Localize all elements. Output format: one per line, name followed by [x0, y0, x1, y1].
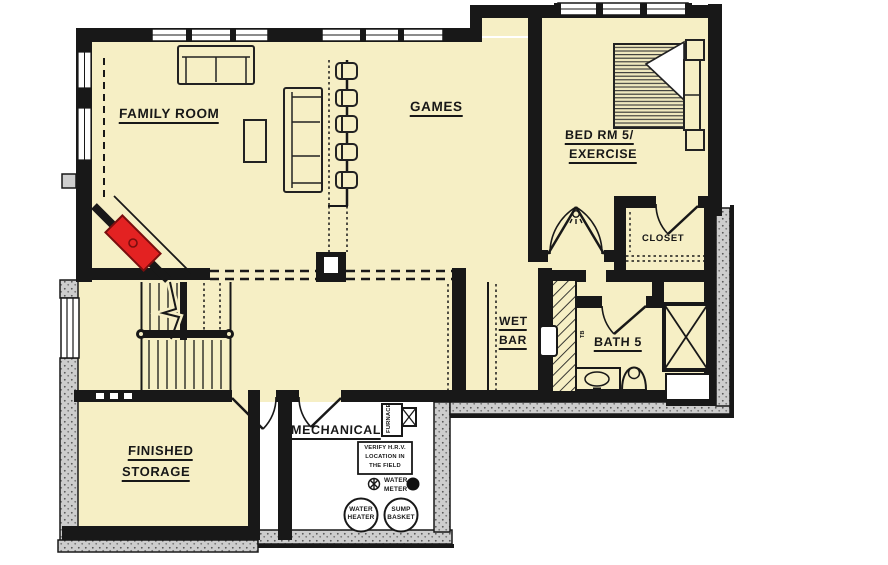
bedroom5-label-line2: EXERCISE [569, 148, 638, 164]
window-well [666, 374, 710, 400]
left-wall-window-2 [78, 108, 91, 160]
hrv-note-line2: LOCATION IN [358, 455, 412, 461]
nightstand [686, 130, 704, 150]
wet-bar-label-line2: BAR [499, 334, 527, 350]
towel-bar-label: TB [581, 330, 587, 338]
games-label: GAMES [410, 100, 463, 117]
bar-stool [336, 172, 357, 188]
bar-stool [336, 63, 357, 79]
sump-basket-label-line2: BASKET [384, 515, 418, 521]
shower [664, 304, 708, 370]
floor-drain-icon [407, 478, 420, 491]
left-wall-window-1 [78, 52, 91, 88]
bath5-label: BATH 5 [594, 336, 642, 352]
sofa [284, 88, 322, 192]
handrail [136, 329, 234, 339]
hall-stub-notch [324, 257, 338, 273]
closet-label: CLOSET [642, 234, 684, 244]
hrv-note-line1: VERIFY H.R.V. [358, 446, 412, 452]
wet-bar-label-line1: WET [499, 315, 528, 331]
nightstand [686, 40, 704, 60]
wall-opening-dashes [96, 393, 132, 399]
top-window-band-2 [322, 29, 443, 41]
floor-plan-canvas: FAMILY ROOM GAMES BED RM 5/ EXERCISE CLO… [0, 0, 888, 565]
water-meter-label-line1: WATER [384, 478, 408, 484]
bedroom-window-band [554, 3, 692, 15]
duct-box [402, 408, 416, 426]
sump-basket-label-line1: SUMP [384, 507, 418, 513]
bar-stool [336, 90, 357, 106]
water-meter-label-line2: METER [384, 487, 407, 493]
water-heater-label-line1: WATER [344, 507, 378, 513]
water-meter-icon [369, 479, 380, 490]
bar-stool [336, 144, 357, 160]
family-room-label: FAMILY ROOM [119, 107, 220, 124]
top-window-band-1 [152, 29, 268, 41]
basement-window-left [61, 298, 79, 358]
bedroom5-label-line1: BED RM 5/ [565, 129, 634, 145]
bar-stool [336, 116, 357, 132]
mechanical-label: MECHANICAL [291, 424, 382, 440]
furnace-label: FURNACE [387, 403, 393, 433]
loveseat [178, 46, 254, 84]
wet-bar-sink-icon [540, 326, 557, 356]
storage-label-line2: STORAGE [122, 465, 191, 482]
water-heater-label-line2: HEATER [344, 515, 378, 521]
vanity-sink-icon [576, 368, 620, 390]
coffee-table [244, 120, 266, 162]
storage-label-line1: FINISHED [128, 444, 194, 461]
hrv-note-line3: THE FIELD [358, 464, 412, 470]
